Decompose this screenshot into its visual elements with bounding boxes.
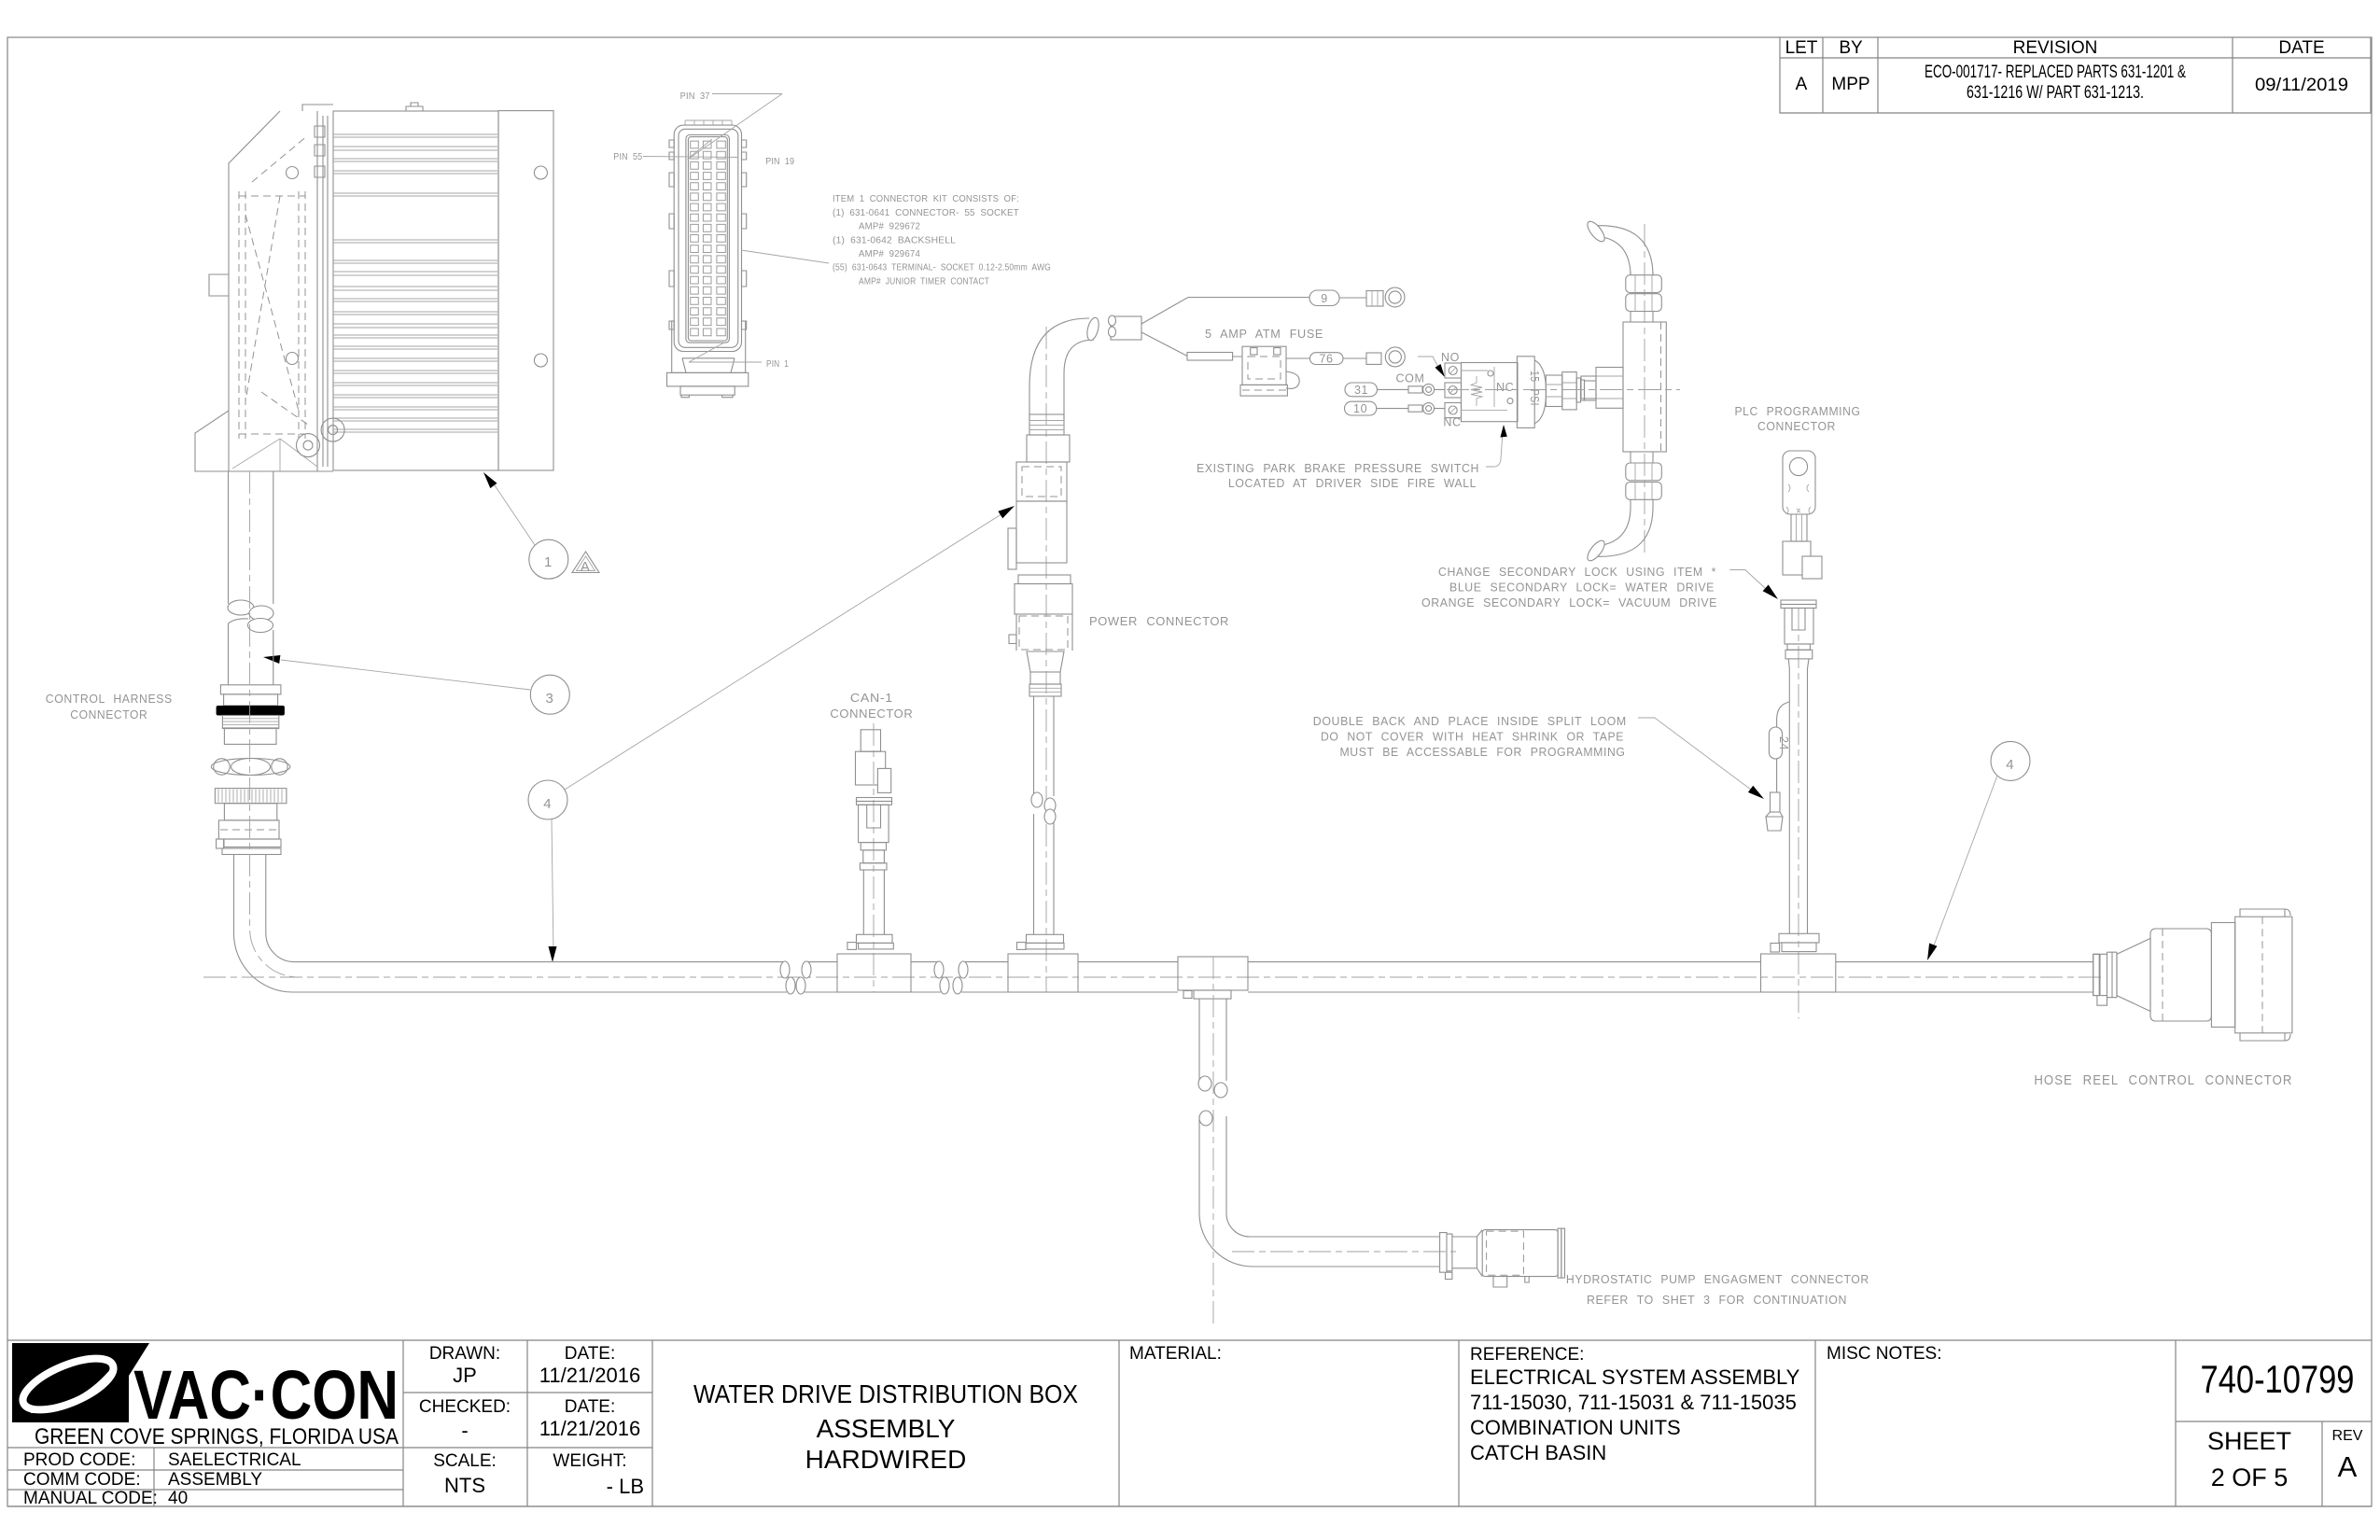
svg-text:PLC PROGRAMMING: PLC PROGRAMMING [1735, 405, 1861, 418]
svg-text:2 OF 5: 2 OF 5 [2211, 1463, 2289, 1491]
svg-text:09/11/2019: 09/11/2019 [2255, 76, 2348, 95]
svg-text:CONTROL HARNESS: CONTROL HARNESS [46, 693, 173, 706]
svg-text:CAN-1: CAN-1 [850, 692, 893, 705]
svg-text:HARDWIRED: HARDWIRED [805, 1445, 967, 1474]
svg-text:631-1216 W/ PART 631-1213.: 631-1216 W/ PART 631-1213. [1967, 83, 2144, 103]
svg-text:CATCH BASIN: CATCH BASIN [1470, 1441, 1606, 1464]
svg-text:BY: BY [1839, 38, 1863, 58]
svg-text:740-10799: 740-10799 [2201, 1357, 2355, 1401]
svg-text:CONNECTOR: CONNECTOR [830, 707, 913, 721]
svg-text:DRAWN:: DRAWN: [429, 1344, 500, 1364]
svg-text:- LB: - LB [607, 1475, 644, 1498]
svg-text:4: 4 [2006, 757, 2015, 773]
svg-text:5 AMP ATM FUSE: 5 AMP ATM FUSE [1205, 328, 1323, 341]
svg-text:A: A [1796, 75, 1808, 94]
svg-text:WATER DRIVE DISTRIBUTION BOX: WATER DRIVE DISTRIBUTION BOX [693, 1379, 1078, 1408]
svg-text:CONNECTOR: CONNECTOR [70, 708, 147, 721]
svg-text:LET: LET [1785, 38, 1818, 58]
svg-text:3: 3 [546, 691, 555, 707]
svg-text:40: 40 [168, 1489, 188, 1508]
svg-text:-: - [461, 1419, 468, 1442]
svg-text:11/21/2016: 11/21/2016 [539, 1364, 640, 1387]
svg-text:ASSEMBLY: ASSEMBLY [817, 1414, 956, 1443]
svg-text:REV: REV [2332, 1428, 2363, 1444]
svg-text:MATERIAL:: MATERIAL: [1129, 1344, 1222, 1364]
svg-text:711-15030, 711-15031 & 711-150: 711-15030, 711-15031 & 711-15035 [1470, 1391, 1797, 1414]
svg-text:(1) 631-0642 BACKSHELL: (1) 631-0642 BACKSHELL [833, 234, 956, 245]
svg-text:COMBINATION UNITS: COMBINATION UNITS [1470, 1416, 1681, 1439]
svg-text:AMP# 929674: AMP# 929674 [859, 248, 920, 259]
svg-text:AMP# JUNIOR TIMER CONTACT: AMP# JUNIOR TIMER CONTACT [859, 275, 989, 287]
svg-text:REVISION: REVISION [2013, 38, 2098, 58]
svg-text:LOCATED AT DRIVER SIDE FIRE WA: LOCATED AT DRIVER SIDE FIRE WALL [1228, 477, 1477, 490]
svg-text:HYDROSTATIC PUMP ENGAGMENT CON: HYDROSTATIC PUMP ENGAGMENT CONNECTOR [1566, 1273, 1869, 1286]
svg-text:9: 9 [1321, 292, 1328, 305]
svg-text:1: 1 [544, 554, 553, 570]
svg-text:CHECKED:: CHECKED: [419, 1397, 511, 1417]
svg-text:PIN 55: PIN 55 [613, 151, 642, 162]
svg-text:NO: NO [1441, 351, 1460, 364]
svg-text:DATE: DATE [2278, 38, 2324, 58]
svg-text:WEIGHT:: WEIGHT: [553, 1451, 626, 1471]
svg-text:MPP: MPP [1831, 75, 1869, 94]
svg-text:11/21/2016: 11/21/2016 [539, 1417, 640, 1440]
svg-text:MUST BE ACCESSABLE FOR PROGRAM: MUST BE ACCESSABLE FOR PROGRAMMING [1340, 746, 1626, 759]
svg-text:ASSEMBLY: ASSEMBLY [168, 1470, 262, 1490]
svg-text:ITEM 1 CONNECTOR KIT CONSISTS: ITEM 1 CONNECTOR KIT CONSISTS OF: [833, 193, 1019, 204]
svg-text:10: 10 [1353, 402, 1367, 415]
svg-text:COMM CODE:: COMM CODE: [23, 1470, 141, 1490]
svg-text:CHANGE SECONDARY LOCK USING IT: CHANGE SECONDARY LOCK USING ITEM * [1438, 566, 1716, 579]
svg-text:PROD CODE:: PROD CODE: [23, 1450, 135, 1470]
svg-text:BLUE SECONDARY LOCK= WATER DRI: BLUE SECONDARY LOCK= WATER DRIVE [1449, 581, 1715, 595]
svg-text:MISC NOTES:: MISC NOTES: [1827, 1344, 1942, 1364]
svg-text:ECO-001717- REPLACED PARTS 631: ECO-001717- REPLACED PARTS 631-1201 & [1925, 63, 2186, 82]
svg-text:4: 4 [543, 796, 553, 812]
svg-text:A: A [581, 559, 591, 575]
svg-text:DATE:: DATE: [565, 1344, 616, 1364]
svg-text:DATE:: DATE: [565, 1397, 616, 1417]
svg-text:24: 24 [1777, 736, 1790, 750]
svg-text:SCALE:: SCALE: [433, 1451, 497, 1471]
svg-text:EXISTING PARK BRAKE PRESSURE S: EXISTING PARK BRAKE PRESSURE SWITCH [1197, 462, 1479, 475]
svg-text:COM: COM [1396, 372, 1425, 385]
svg-text:VAC·CON: VAC·CON [133, 1356, 399, 1434]
svg-text:JP: JP [453, 1364, 477, 1387]
svg-text:DOUBLE BACK AND PLACE INSIDE S: DOUBLE BACK AND PLACE INSIDE SPLIT LOOM [1313, 715, 1627, 728]
svg-text:REFER TO SHET 3 FOR CONTINUATI: REFER TO SHET 3 FOR CONTINUATION [1587, 1294, 1847, 1307]
svg-text:ORANGE SECONDARY LOCK= VACUUM: ORANGE SECONDARY LOCK= VACUUM DRIVE [1421, 596, 1717, 609]
svg-text:HOSE REEL CONTROL CONNECTOR: HOSE REEL CONTROL CONNECTOR [2034, 1072, 2292, 1088]
svg-text:PIN 1: PIN 1 [766, 358, 789, 370]
svg-text:AMP# 929672: AMP# 929672 [859, 221, 920, 232]
svg-text:NC: NC [1496, 381, 1514, 394]
svg-text:NTS: NTS [444, 1474, 485, 1497]
svg-text:ELECTRICAL SYSTEM ASSEMBLY: ELECTRICAL SYSTEM ASSEMBLY [1470, 1365, 1800, 1389]
svg-text:REFERENCE:: REFERENCE: [1470, 1345, 1584, 1365]
svg-text:MANUAL CODE:: MANUAL CODE: [23, 1489, 158, 1508]
svg-text:CONNECTOR: CONNECTOR [1757, 420, 1836, 433]
svg-text:PIN 37: PIN 37 [680, 91, 710, 102]
svg-text:PIN 19: PIN 19 [765, 156, 794, 167]
svg-text:POWER CONNECTOR: POWER CONNECTOR [1089, 615, 1229, 628]
svg-text:(1) 631-0641 CONNECTOR- 55 SOC: (1) 631-0641 CONNECTOR- 55 SOCKET [833, 207, 1019, 218]
svg-text:DO NOT COVER WITH HEAT SHRINK: DO NOT COVER WITH HEAT SHRINK OR TAPE [1321, 730, 1624, 743]
svg-text:15 PSI: 15 PSI [1528, 371, 1541, 406]
svg-text:GREEN COVE SPRINGS, FLORIDA US: GREEN COVE SPRINGS, FLORIDA USA [35, 1424, 399, 1449]
svg-text:A: A [2338, 1450, 2358, 1483]
svg-text:SAELECTRICAL: SAELECTRICAL [168, 1450, 301, 1470]
svg-text:SHEET: SHEET [2207, 1427, 2291, 1455]
svg-text:(55) 631-0643 TERMINAL- SOCKET: (55) 631-0643 TERMINAL- SOCKET 0.12-2.50… [833, 262, 1051, 273]
svg-text:31: 31 [1354, 384, 1368, 397]
svg-text:76: 76 [1319, 353, 1333, 366]
